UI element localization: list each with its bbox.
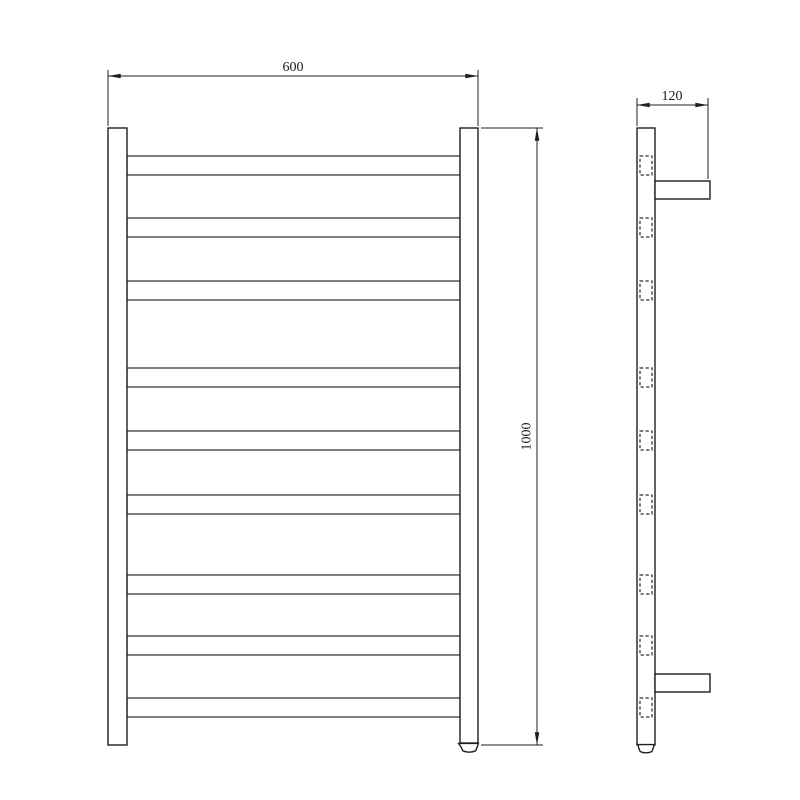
- height-dimension-label: 1000: [520, 423, 535, 451]
- front-rung-bar: [127, 431, 460, 450]
- width-dimension-label: 600: [283, 60, 304, 75]
- front-rung-bar: [127, 368, 460, 387]
- front-rung-bar: [127, 156, 460, 175]
- front-right-rail: [460, 128, 478, 743]
- side-view: [637, 128, 710, 753]
- width-dimension: 600: [108, 60, 478, 126]
- side-wall-bracket: [655, 181, 710, 199]
- front-rung-bar: [127, 636, 460, 655]
- front-rung-bar: [127, 575, 460, 594]
- side-wall-brackets: [655, 181, 710, 692]
- front-rung-bar: [127, 218, 460, 237]
- side-rail-foot: [638, 745, 654, 753]
- front-left-rail: [108, 128, 127, 745]
- height-dimension: 1000: [481, 128, 543, 745]
- front-rung-bar: [127, 495, 460, 514]
- drawing-canvas: 600 1000 120: [0, 0, 800, 800]
- front-rung-bar: [127, 281, 460, 300]
- side-wall-bracket: [655, 674, 710, 692]
- front-rungs: [127, 156, 460, 717]
- front-view: [108, 128, 478, 752]
- front-rung-bar: [127, 698, 460, 717]
- towel-rail-dimension-drawing: 600 1000 120: [0, 0, 800, 800]
- front-right-rail-foot: [459, 743, 479, 752]
- depth-dimension-label: 120: [662, 89, 683, 104]
